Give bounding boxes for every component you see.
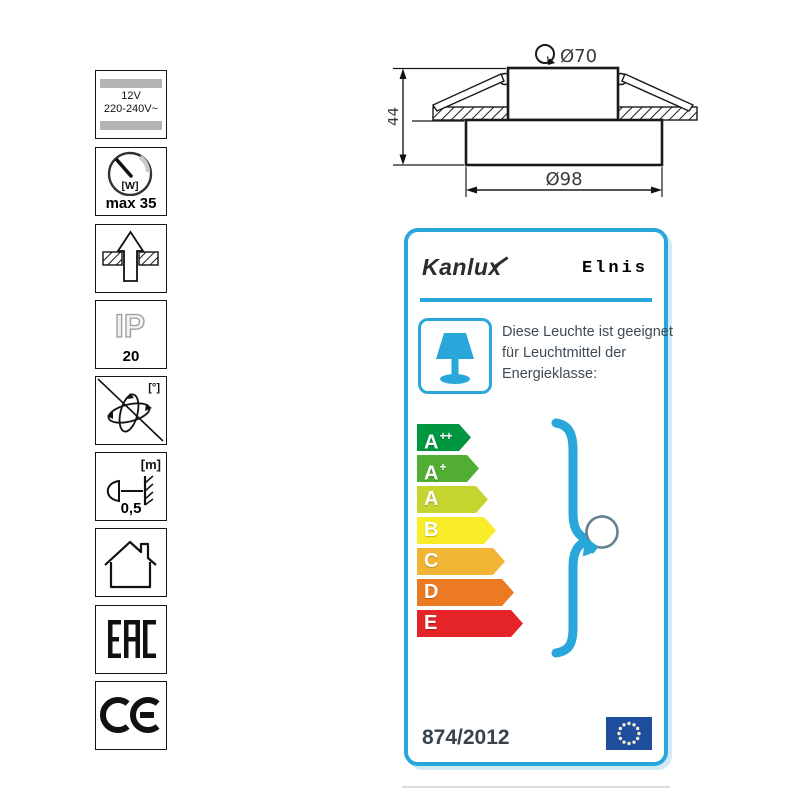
- voltage-line2: 220-240V~: [96, 103, 166, 116]
- eu-flag: [606, 717, 652, 750]
- spec-box-max-wattage: [W] max 35: [95, 147, 167, 216]
- regulation-number: 874/2012: [422, 726, 510, 750]
- spec-box-ip-rating: IP 20: [95, 300, 167, 369]
- energy-class-B: B: [417, 517, 496, 544]
- spec-box-voltage: 12V 220-240V~: [95, 70, 167, 139]
- dim-outer-label: Ø98: [545, 169, 582, 190]
- degrees-unit: [°]: [148, 382, 160, 394]
- energy-label: Kanlux Elnis Diese Leuchte ist geeignet …: [404, 228, 668, 766]
- voltage-line1: 12V: [96, 90, 166, 103]
- transformer-bar-bottom: [100, 121, 162, 130]
- fixture-housing: [508, 68, 618, 120]
- spec-box-ce: [95, 681, 167, 750]
- spring-clip-left: [433, 74, 511, 112]
- transformer-bar-top: [100, 79, 162, 88]
- ceiling-section-left: [433, 107, 508, 120]
- ce-mark-icon: [96, 682, 165, 748]
- label-description: Diese Leuchte ist geeignet für Leuchtmit…: [502, 322, 674, 385]
- spec-box-eac: [95, 605, 167, 674]
- dim-height-label: 44: [388, 107, 402, 126]
- energy-class-A++: A++: [417, 424, 471, 451]
- page-divider-line: [402, 786, 670, 788]
- voltage-text: 12V 220-240V~: [96, 90, 166, 116]
- spec-box-indoor-use: [95, 528, 167, 597]
- house-icon: [96, 529, 165, 595]
- spring-clip-right: [616, 74, 694, 112]
- table-lamp-icon: [421, 321, 489, 391]
- energy-class-A+: A+: [417, 455, 479, 482]
- energy-class-A: A: [417, 486, 488, 513]
- max-wattage-caption: max 35: [96, 195, 166, 212]
- spec-box-recessed-mounting: [95, 224, 167, 293]
- label-divider-rule: [420, 298, 652, 302]
- meters-unit: [m]: [141, 457, 161, 472]
- spec-box-not-adjustable: [°]: [95, 376, 167, 445]
- svg-text:IP: IP: [115, 308, 145, 344]
- energy-class-arrows: A++A+ABCDE: [417, 424, 523, 641]
- wattage-gauge-icon: [W]: [96, 148, 165, 196]
- svg-text:[W]: [W]: [122, 180, 139, 192]
- brand-logo: Kanlux: [422, 254, 502, 281]
- dim-cutout-label: Ø70: [560, 46, 597, 67]
- light-bulb-icon: [578, 510, 644, 572]
- model-name: Elnis: [582, 259, 648, 278]
- recessed-mounting-icon: [96, 225, 165, 291]
- ip-rating-caption: 20: [96, 348, 166, 365]
- energy-class-C: C: [417, 548, 505, 575]
- ip-letters: IP: [96, 301, 165, 345]
- fixture-trim: [466, 120, 662, 165]
- eac-mark-icon: [96, 606, 165, 672]
- luminaire-pictogram-box: [418, 318, 492, 394]
- min-distance-caption: 0,5: [96, 500, 166, 517]
- energy-class-E: E: [417, 610, 523, 637]
- cutout-symbol: [536, 45, 555, 65]
- spec-box-min-distance: [m] 0,5: [95, 452, 167, 521]
- technical-drawing: Ø70 44 Ø98: [388, 34, 710, 206]
- energy-class-D: D: [417, 579, 514, 606]
